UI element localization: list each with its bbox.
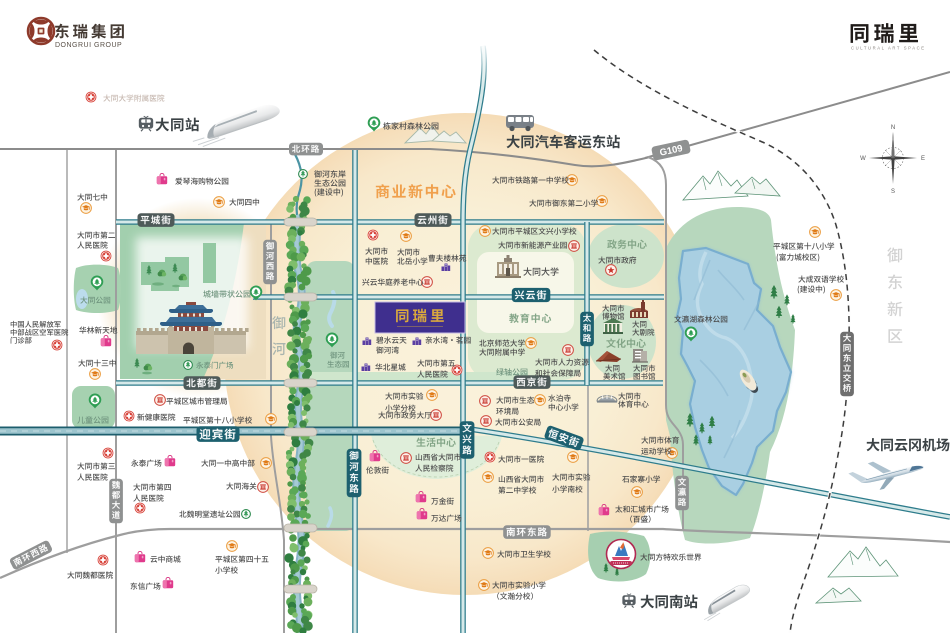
svg-text:E: E [921,156,925,162]
svg-text:W: W [860,156,866,162]
svg-text:DONGRUI GROUP: DONGRUI GROUP [55,42,122,49]
svg-text:CULTURAL ART SPACE: CULTURAL ART SPACE [851,46,926,51]
svg-text:N: N [891,125,895,131]
svg-text:S: S [891,189,895,195]
